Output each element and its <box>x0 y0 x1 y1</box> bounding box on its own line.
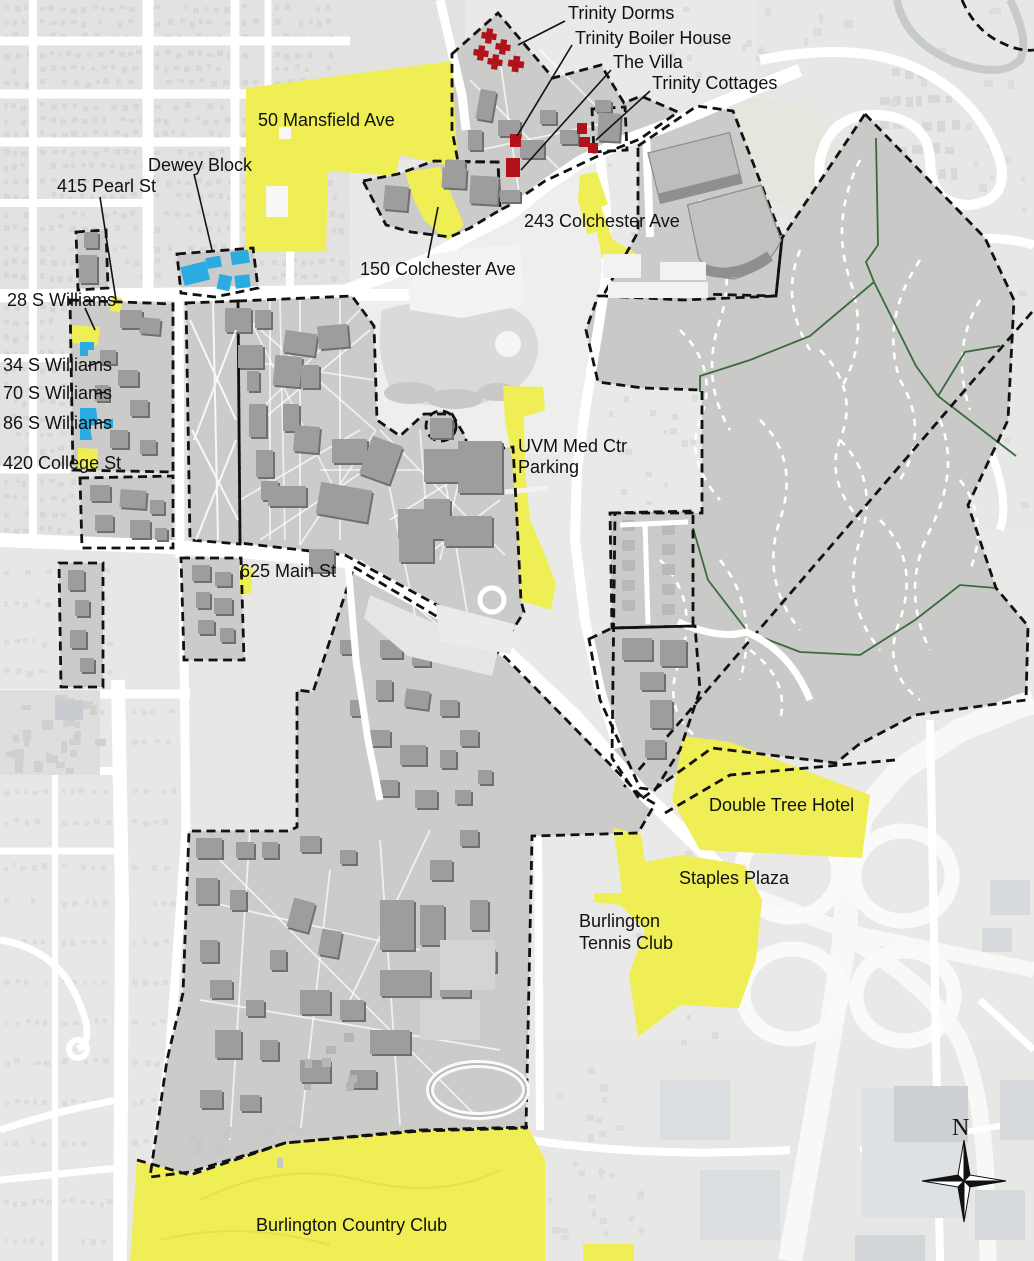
svg-text:Trinity Boiler House: Trinity Boiler House <box>575 28 731 48</box>
svg-text:Dewey Block: Dewey Block <box>148 155 253 175</box>
svg-text:Burlington Country Club: Burlington Country Club <box>256 1215 447 1235</box>
svg-text:70 S Williams: 70 S Williams <box>3 383 112 403</box>
svg-text:243 Colchester Ave: 243 Colchester Ave <box>524 211 680 231</box>
svg-text:N: N <box>952 1115 969 1141</box>
svg-text:150 Colchester Ave: 150 Colchester Ave <box>360 259 516 279</box>
svg-text:34 S Williams: 34 S Williams <box>3 355 112 375</box>
svg-text:625 Main St: 625 Main St <box>240 561 336 581</box>
svg-text:50 Mansfield Ave: 50 Mansfield Ave <box>258 110 395 130</box>
svg-text:Double Tree Hotel: Double Tree Hotel <box>709 795 854 815</box>
svg-text:The Villa: The Villa <box>613 52 684 72</box>
svg-text:415 Pearl St: 415 Pearl St <box>57 176 156 196</box>
svg-text:UVM Med Ctr: UVM Med Ctr <box>518 436 627 456</box>
svg-text:Trinity Dorms: Trinity Dorms <box>568 3 674 23</box>
svg-text:Trinity Cottages: Trinity Cottages <box>652 73 777 93</box>
svg-text:Burlington: Burlington <box>579 911 660 931</box>
svg-text:28 S Williams: 28 S Williams <box>7 290 116 310</box>
svg-text:Tennis Club: Tennis Club <box>579 933 673 953</box>
svg-text:420 College St: 420 College St <box>3 453 121 473</box>
svg-text:86 S Williams: 86 S Williams <box>3 413 112 433</box>
svg-text:Parking: Parking <box>518 457 579 477</box>
svg-text:Staples Plaza: Staples Plaza <box>679 868 790 888</box>
